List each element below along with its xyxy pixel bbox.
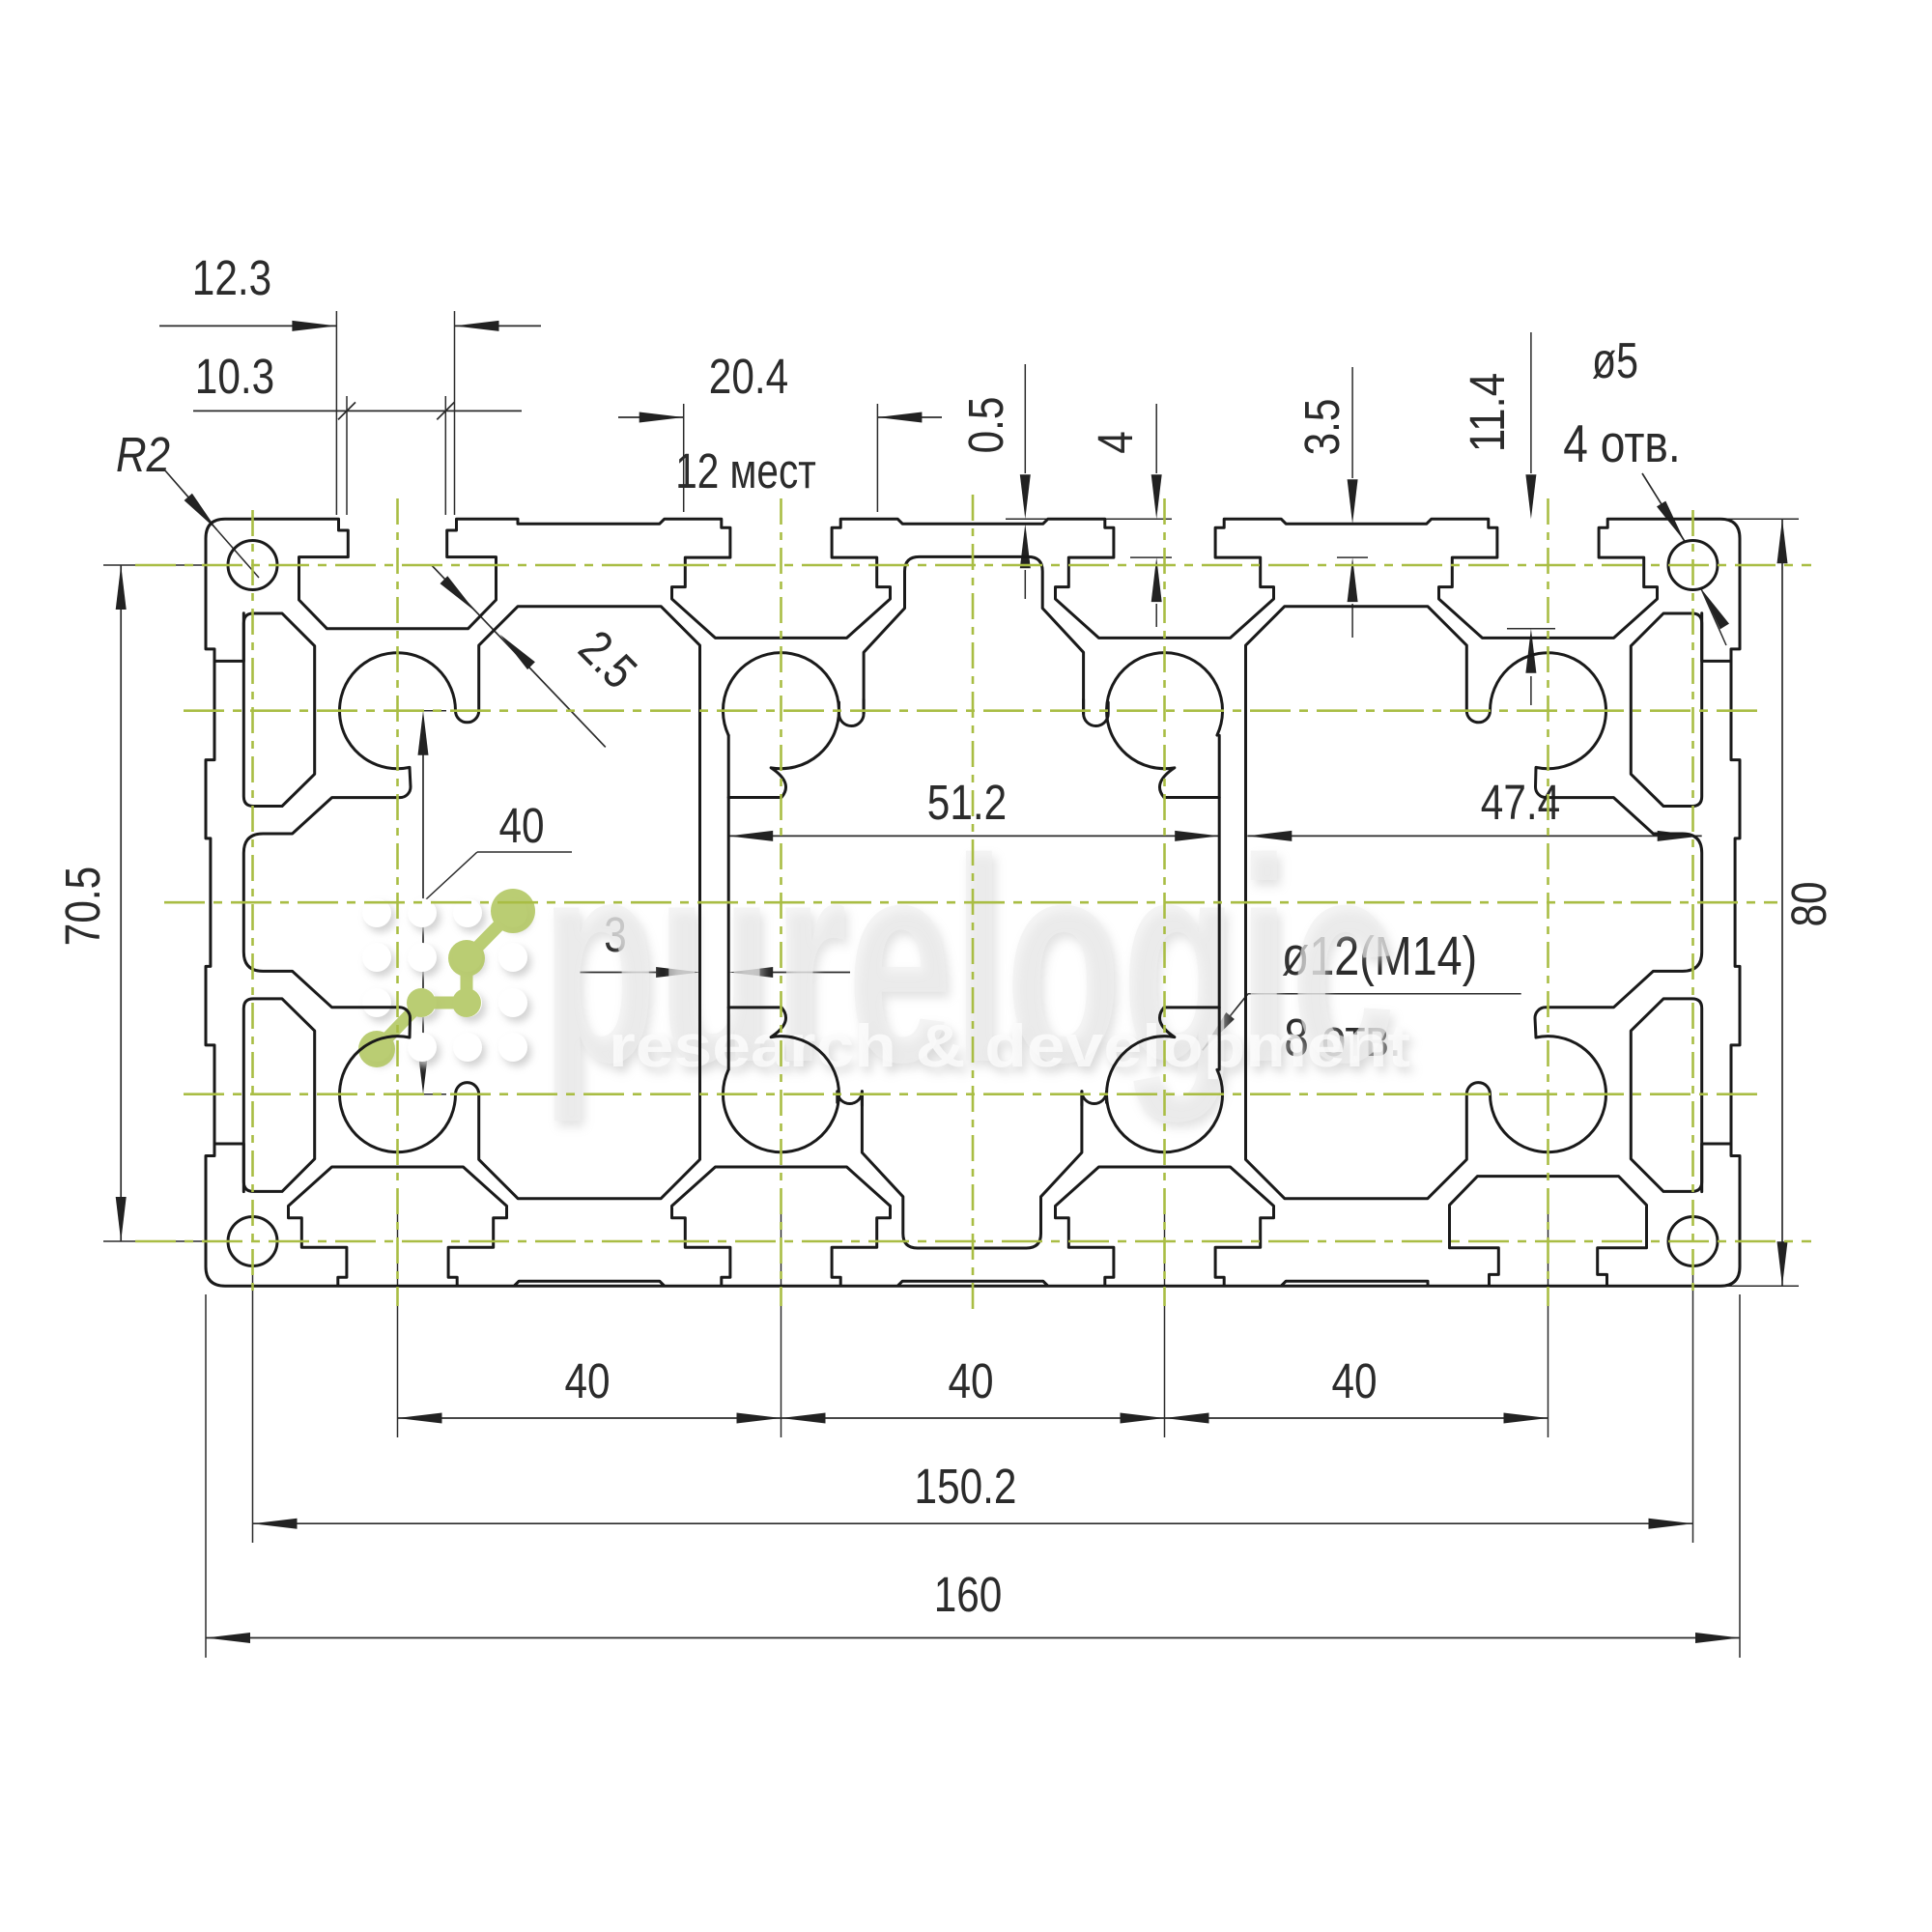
- svg-text:ø5: ø5: [1592, 333, 1638, 389]
- svg-text:12 мест: 12 мест: [675, 443, 816, 498]
- svg-text:3.5: 3.5: [1294, 399, 1350, 456]
- svg-text:4 отв.: 4 отв.: [1563, 413, 1680, 473]
- svg-text:70.5: 70.5: [55, 867, 110, 946]
- svg-text:12.3: 12.3: [192, 250, 271, 305]
- svg-text:150.2: 150.2: [915, 1459, 1017, 1514]
- svg-text:11.4: 11.4: [1460, 373, 1515, 452]
- svg-text:40: 40: [1331, 1353, 1377, 1408]
- svg-text:4: 4: [1088, 431, 1143, 454]
- svg-text:160: 160: [934, 1567, 1003, 1622]
- svg-text:40: 40: [948, 1353, 993, 1408]
- svg-text:80: 80: [1781, 881, 1836, 926]
- svg-text:R2: R2: [116, 427, 170, 482]
- svg-text:0.5: 0.5: [958, 397, 1013, 454]
- svg-text:20.4: 20.4: [709, 349, 788, 404]
- svg-text:10.3: 10.3: [195, 349, 274, 404]
- svg-text:40: 40: [564, 1353, 610, 1408]
- svg-text:40: 40: [498, 798, 544, 853]
